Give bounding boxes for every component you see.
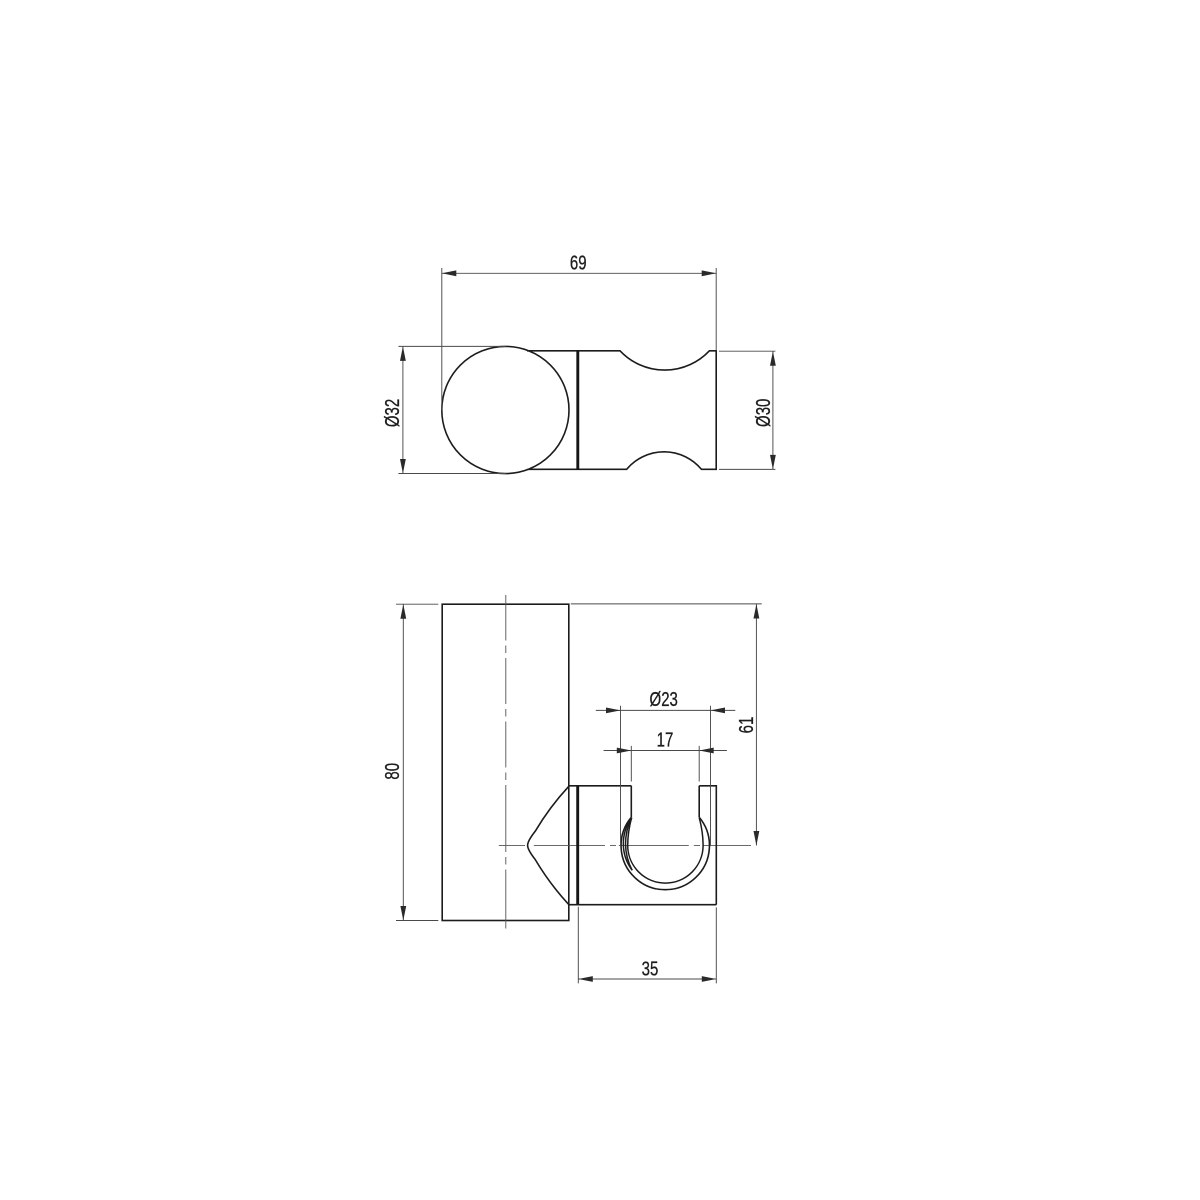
svg-text:17: 17	[657, 728, 674, 751]
svg-text:35: 35	[642, 957, 659, 980]
svg-text:Ø30: Ø30	[752, 398, 775, 426]
svg-text:61: 61	[735, 717, 758, 734]
svg-text:Ø23: Ø23	[650, 688, 678, 711]
svg-text:Ø32: Ø32	[381, 399, 404, 427]
svg-text:69: 69	[570, 251, 587, 274]
svg-text:80: 80	[381, 763, 404, 780]
